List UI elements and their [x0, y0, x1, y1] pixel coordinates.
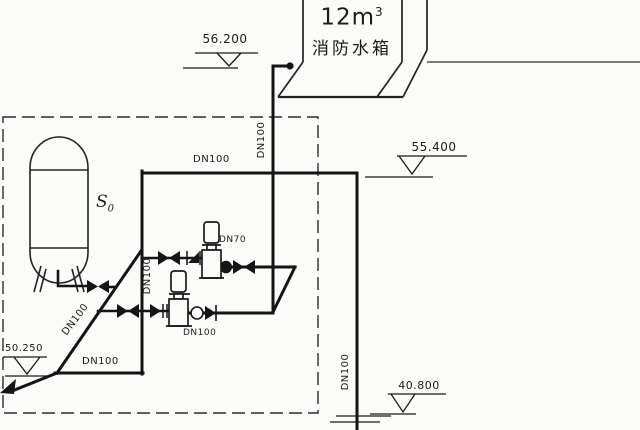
- pipe-label-suction-header: DN100: [143, 254, 153, 298]
- elevation-symbol-roof: [183, 53, 258, 68]
- fire-pump-upper: [199, 222, 224, 278]
- pump-motor: [204, 222, 219, 243]
- check-valve-lower: [191, 305, 216, 321]
- pipe-label-drain-riser: DN100: [341, 350, 351, 394]
- elevation-lower-floor-value: 40.800: [393, 380, 445, 391]
- elevation-tank-level-value: 55.400: [404, 141, 464, 153]
- pipe-label-bottom-suction: DN100: [82, 357, 119, 367]
- elevation-symbol-lower-floor: [370, 394, 446, 414]
- fire-pump-lower: [166, 271, 192, 326]
- tank-inlet-joint-dot: [286, 62, 293, 69]
- pipe-break-ticks: [330, 416, 391, 422]
- gate-valve-upper-suction: [158, 251, 180, 265]
- gate-valve-upper-discharge: [233, 260, 255, 274]
- pump-body: [169, 299, 188, 326]
- fire-tank-volume-label: 12m3: [312, 6, 392, 30]
- pump-room-dashed-boundary: [3, 117, 318, 413]
- elevation-roof-value: 56.200: [196, 33, 254, 45]
- pipe-label-pump-top-outlet: DN70: [219, 236, 246, 245]
- gate-valve-lower-suction: [117, 304, 139, 318]
- pump-body: [202, 250, 221, 278]
- pressure-tank-label: S0: [96, 194, 114, 214]
- elevation-pump-room-value: 50.250: [3, 344, 45, 354]
- elevation-symbol-tank-level: [365, 156, 467, 177]
- elevation-symbol-pump-room: [3, 357, 51, 376]
- pipe-label-top-main: DN100: [193, 155, 230, 165]
- piping-diagram: 12m3 消防水箱 56.200 55.400 50.250 40.800 S0…: [0, 0, 640, 430]
- pipe-discharge-diagonal: [273, 267, 295, 312]
- pipe-label-pump-bottom-outlet: DN100: [183, 329, 216, 338]
- pressure-tank-outline: [30, 137, 88, 292]
- gate-valve-tank-outlet: [87, 280, 109, 293]
- pipe-label-tank-riser: DN100: [257, 118, 267, 162]
- fire-tank-name-label: 消防水箱: [305, 41, 399, 58]
- pump-motor: [171, 271, 186, 292]
